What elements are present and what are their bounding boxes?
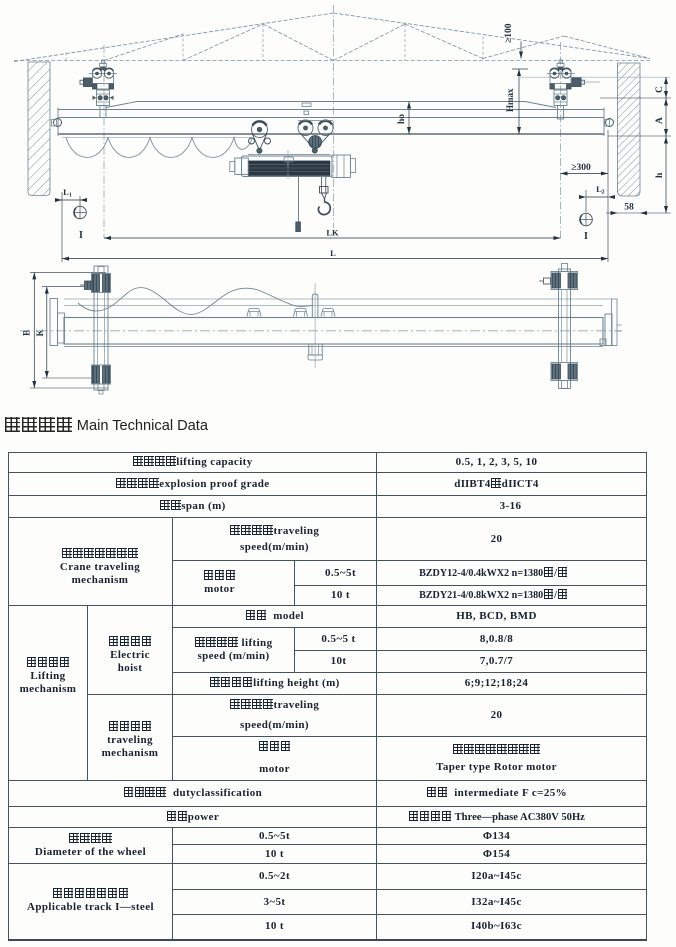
svg-text:ho: ho: [397, 114, 407, 124]
svg-text:≥100: ≥100: [504, 23, 514, 43]
svg-text:2: 2: [602, 190, 605, 196]
svg-text:A: A: [655, 117, 665, 124]
svg-text:1: 1: [69, 193, 72, 199]
svg-text:B: B: [23, 329, 33, 336]
svg-text:Hmax: Hmax: [505, 88, 515, 112]
svg-text:L: L: [330, 248, 336, 258]
svg-text:h: h: [655, 172, 665, 178]
svg-text:≥300: ≥300: [571, 163, 591, 173]
svg-text:C: C: [655, 86, 665, 93]
svg-text:LK: LK: [326, 228, 339, 238]
svg-text:I: I: [584, 231, 588, 242]
svg-text:58: 58: [624, 203, 634, 213]
svg-text:K: K: [36, 329, 46, 337]
svg-text:I: I: [79, 230, 83, 241]
